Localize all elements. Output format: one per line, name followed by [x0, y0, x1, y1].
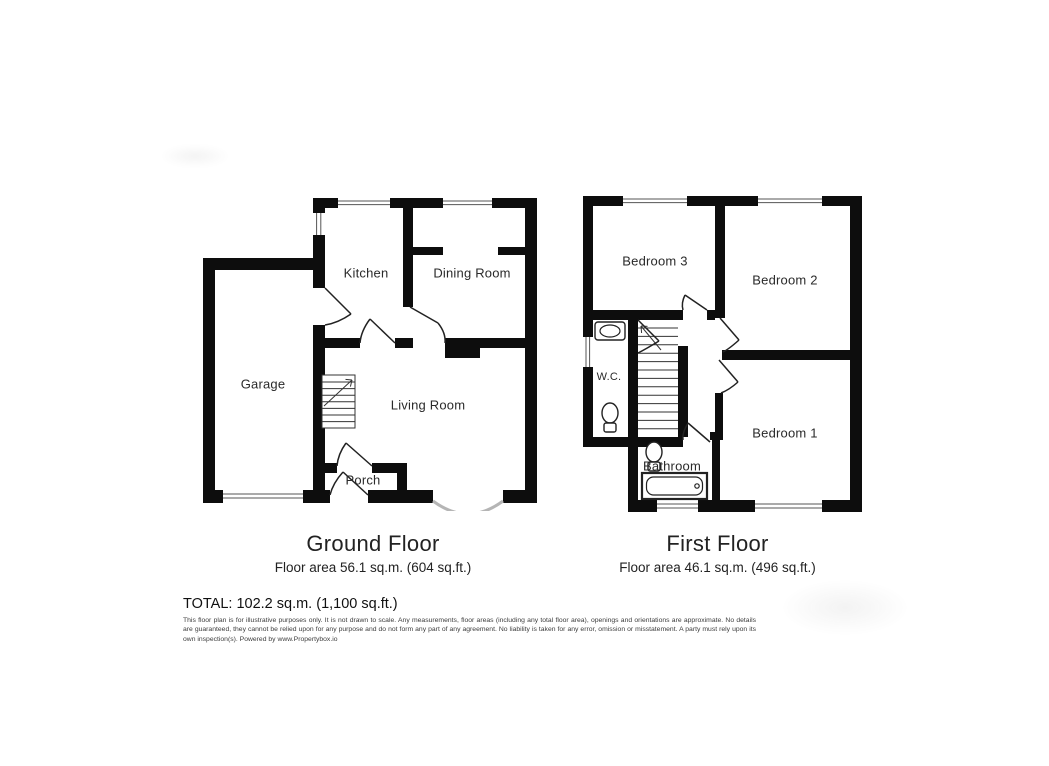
room-label-bedroom-3: Bedroom 3 [622, 254, 687, 269]
kitchen-window [338, 198, 390, 208]
wc-window [583, 337, 593, 367]
room-label-kitchen: Kitchen [344, 266, 389, 281]
bedroom1-door-swing [719, 360, 738, 393]
bedroom3-door-swing [682, 295, 707, 310]
room-label-bedroom-2: Bedroom 2 [752, 273, 817, 288]
first-floor-walls [583, 196, 862, 512]
dining-room-window [443, 198, 492, 208]
room-label-dining-room: Dining Room [433, 266, 510, 281]
room-label-wc: W.C. [597, 371, 622, 383]
ground-floor-drawing [203, 196, 543, 511]
ground-floor-title: Ground Floor [203, 531, 543, 557]
first-floor-plan: Bedroom 3 Bedroom 2 Bedroom 1 W.C. Bathr… [581, 194, 864, 516]
first-floor-title: First Floor [576, 531, 859, 557]
disclaimer-text: This floor plan is for illustrative purp… [183, 616, 756, 644]
first-floor-area-text: Floor area 46.1 sq.m. (496 sq.ft.) [576, 560, 859, 575]
garage-door-symbol [223, 490, 303, 503]
bedroom1-window [755, 500, 822, 512]
bedroom3-window [623, 196, 687, 206]
room-label-bedroom-1: Bedroom 1 [752, 426, 817, 441]
bedroom2-door-swing [720, 318, 739, 352]
sink-symbol [595, 322, 625, 340]
room-label-porch: Porch [346, 473, 381, 488]
porch-inner-door-swing [337, 443, 372, 466]
kitchen-dining-door-swing [410, 307, 445, 343]
bathtub-symbol [642, 473, 707, 499]
room-label-bathroom: Bathroom [643, 459, 701, 474]
bedroom2-window [758, 196, 822, 206]
ground-floor-plan: Kitchen Dining Room Garage Living Room P… [203, 196, 543, 511]
garage-kitchen-door-swing [325, 288, 351, 325]
kitchen-living-door-swing [360, 319, 395, 343]
ground-floor-area-text: Floor area 56.1 sq.m. (604 sq.ft.) [203, 560, 543, 575]
ground-floor-walls [203, 198, 537, 503]
first-floor-drawing [581, 194, 864, 516]
total-area-text: TOTAL: 102.2 sq.m. (1,100 sq.ft.) [183, 596, 398, 612]
wc-toilet-symbol [602, 403, 618, 432]
scan-artifact [160, 145, 230, 167]
bathroom-window [657, 500, 698, 512]
kitchen-side-window [313, 213, 325, 235]
floorplan-page: Kitchen Dining Room Garage Living Room P… [0, 0, 1049, 766]
bay-window-symbol [433, 501, 503, 511]
staircase-symbol [322, 375, 355, 428]
room-label-garage: Garage [241, 377, 286, 392]
room-label-living-room: Living Room [391, 398, 465, 413]
scan-artifact [780, 580, 910, 635]
